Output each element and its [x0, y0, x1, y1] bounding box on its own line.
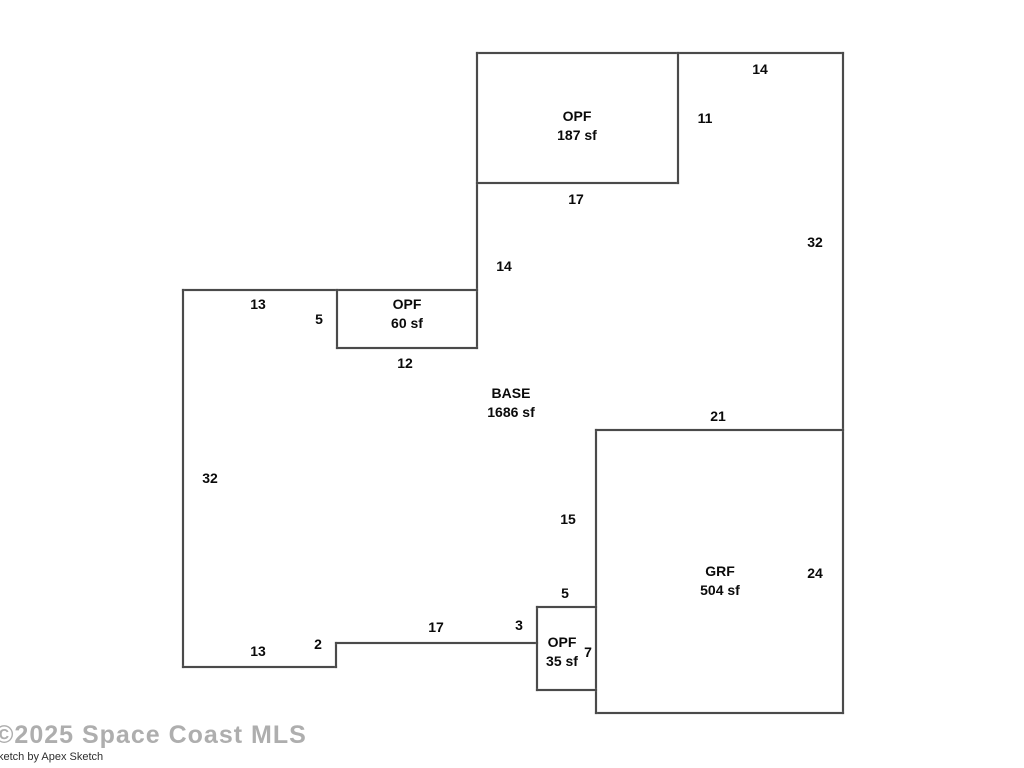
floorplan-page: 1411173214135122132152453172137OPF187 sf… [0, 0, 1024, 768]
dimension-label: 32 [202, 471, 218, 485]
wall-segment [182, 666, 337, 668]
area-label: GRF504 sf [700, 562, 740, 600]
wall-segment [476, 52, 478, 349]
area-sqft: 1686 sf [487, 403, 534, 422]
dimension-label: 5 [315, 312, 323, 326]
watermark-copyright: ©2025 Space Coast MLS [0, 721, 307, 750]
dimension-label: 13 [250, 644, 266, 658]
wall-segment [476, 52, 844, 54]
area-name: OPF [557, 107, 597, 126]
dimension-label: 32 [807, 235, 823, 249]
dimension-label: 15 [560, 512, 576, 526]
wall-segment [476, 182, 679, 184]
wall-segment [595, 712, 844, 714]
area-sqft: 35 sf [546, 652, 578, 671]
wall-segment [336, 347, 478, 349]
wall-segment [536, 606, 538, 691]
watermark-credit: ketch by Apex Sketch [0, 751, 103, 763]
area-name: OPF [391, 295, 423, 314]
area-sqft: 187 sf [557, 126, 597, 145]
wall-segment [335, 642, 337, 668]
dimension-label: 7 [584, 645, 592, 659]
wall-segment [182, 289, 478, 291]
dimension-label: 3 [515, 618, 523, 632]
area-label: OPF60 sf [391, 295, 423, 333]
dimension-label: 13 [250, 297, 266, 311]
area-sqft: 60 sf [391, 314, 423, 333]
dimension-label: 2 [314, 637, 322, 651]
area-label: BASE1686 sf [487, 384, 534, 422]
area-label: OPF187 sf [557, 107, 597, 145]
floorplan-canvas: 1411173214135122132152453172137OPF187 sf… [0, 0, 1024, 768]
wall-segment [336, 289, 338, 349]
wall-segment [536, 689, 597, 691]
area-name: GRF [700, 562, 740, 581]
wall-segment [335, 642, 538, 644]
dimension-label: 12 [397, 356, 413, 370]
wall-segment [595, 429, 597, 714]
area-name: OPF [546, 633, 578, 652]
wall-segment [182, 289, 184, 668]
dimension-label: 21 [710, 409, 726, 423]
dimension-label: 11 [698, 111, 713, 125]
wall-segment [842, 52, 844, 714]
dimension-label: 14 [752, 62, 768, 76]
wall-segment [536, 606, 597, 608]
area-label: OPF35 sf [546, 633, 578, 671]
wall-segment [677, 52, 679, 184]
wall-segment [595, 429, 844, 431]
dimension-label: 17 [428, 620, 444, 634]
dimension-label: 5 [561, 586, 569, 600]
dimension-label: 14 [496, 259, 512, 273]
dimension-label: 24 [807, 566, 823, 580]
area-name: BASE [487, 384, 534, 403]
area-sqft: 504 sf [700, 581, 740, 600]
dimension-label: 17 [568, 192, 584, 206]
